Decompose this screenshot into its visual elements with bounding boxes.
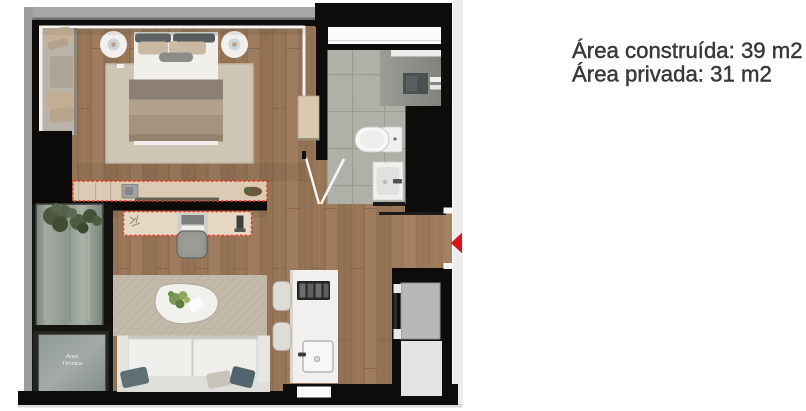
svg-text:Técnica: Técnica [62, 361, 83, 367]
svg-text:Área privada: 31 m2: Área privada: 31 m2 [572, 61, 772, 86]
svg-text:Área: Área [66, 353, 79, 360]
svg-text:Área construída: 39 m2: Área construída: 39 m2 [572, 38, 803, 63]
